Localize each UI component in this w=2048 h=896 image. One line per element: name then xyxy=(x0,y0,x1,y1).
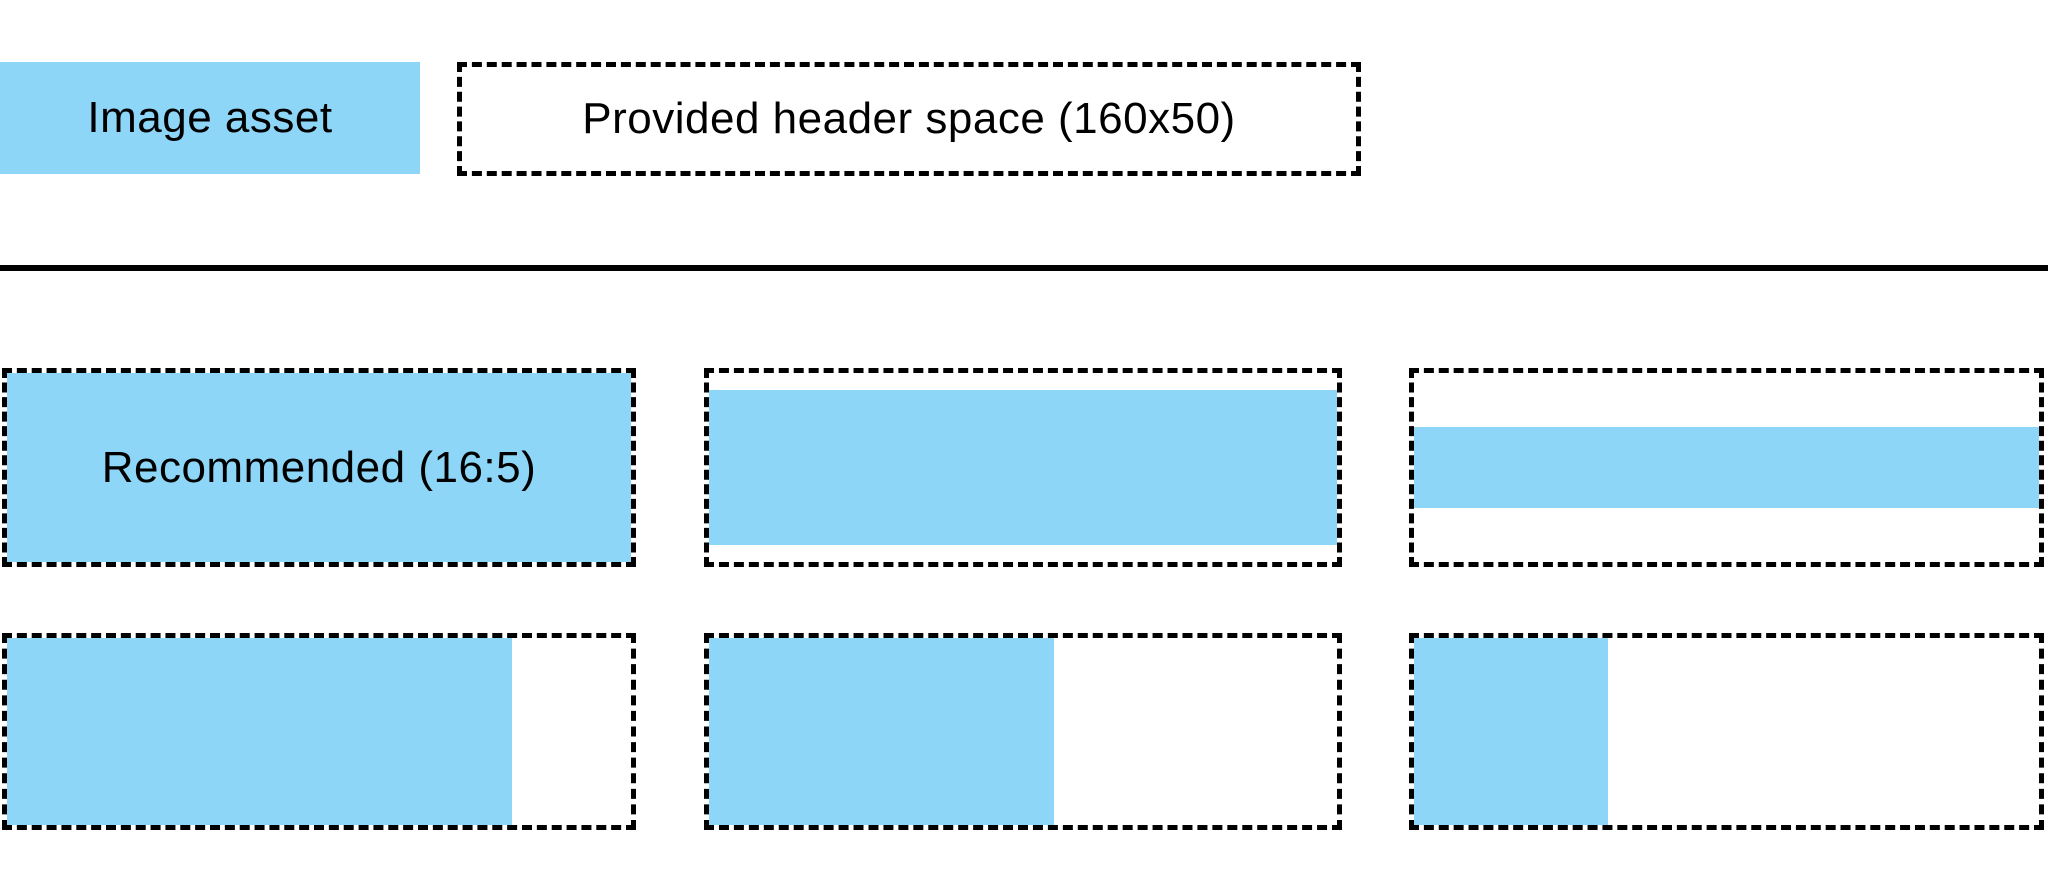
section-divider-line xyxy=(0,265,2048,271)
example-box-full-height-narrow xyxy=(1409,633,2044,830)
legend-provided-header-space-box: Provided header space (160x50) xyxy=(457,62,1361,176)
legend-provided-header-space-label: Provided header space (160x50) xyxy=(582,97,1235,141)
asset-sizing-diagram: Image asset Provided header space (160x5… xyxy=(0,0,2048,896)
example-box-full-width-tall xyxy=(704,368,1342,567)
legend-image-asset-label: Image asset xyxy=(87,96,332,140)
image-asset-full-height-narrow xyxy=(1414,638,1608,825)
example-box-full-width-thin xyxy=(1409,368,2044,567)
image-asset-full-height-medium xyxy=(709,638,1054,825)
image-asset-full-width-thin xyxy=(1414,427,2039,508)
example-box-full-height-medium xyxy=(704,633,1342,830)
image-asset-full-height-wide xyxy=(7,638,512,825)
legend-image-asset-swatch: Image asset xyxy=(0,62,420,174)
image-asset-recommended: Recommended (16:5) xyxy=(7,373,631,562)
recommended-ratio-label: Recommended (16:5) xyxy=(102,446,537,490)
example-box-recommended: Recommended (16:5) xyxy=(2,368,636,567)
image-asset-full-width-tall xyxy=(709,390,1337,545)
example-box-full-height-wide xyxy=(2,633,636,830)
